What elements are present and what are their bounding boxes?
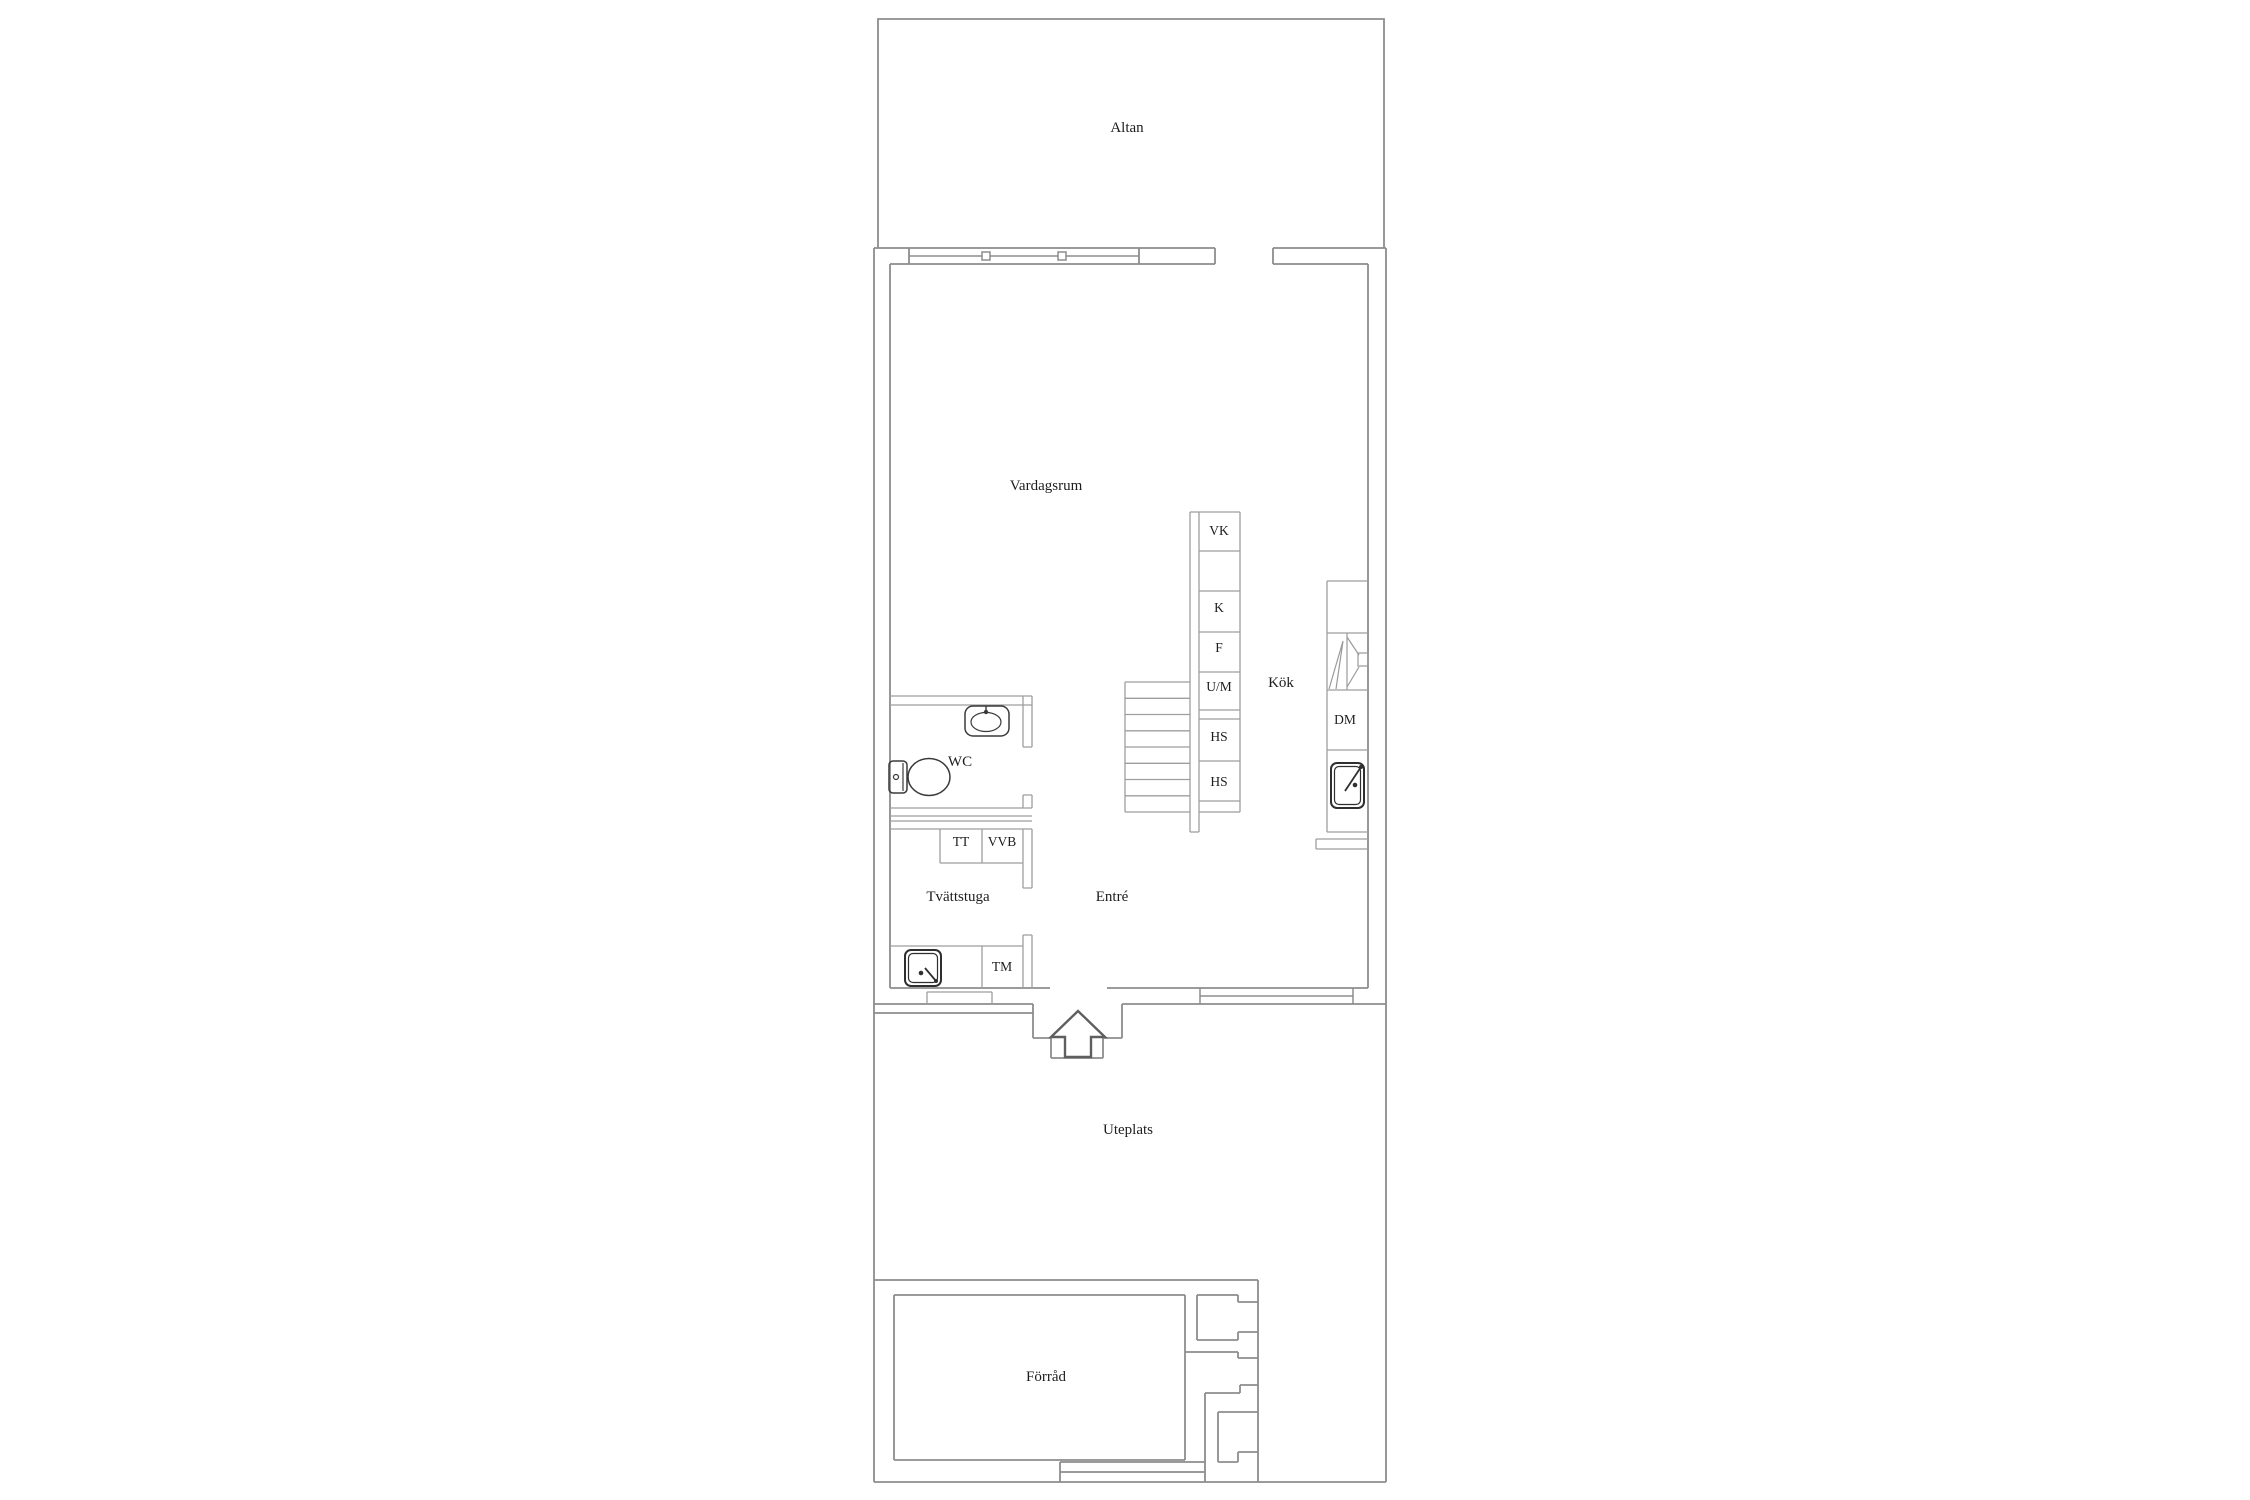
- fixture-label-dm: DM: [1334, 712, 1356, 727]
- room-label-tvattstuga: Tvättstuga: [926, 889, 990, 905]
- laundry-sink-icon: [905, 950, 941, 986]
- room-label-forrad: Förråd: [1026, 1369, 1066, 1385]
- fixture-labels: VK K F U/M HS HS DM TT VVB TM: [953, 523, 1356, 974]
- fixture-label-hs-lower: HS: [1210, 774, 1227, 789]
- room-label-kok: Kök: [1268, 675, 1294, 691]
- forrad-enclosure: [874, 1280, 1258, 1482]
- kitchen-counter: [1327, 581, 1368, 832]
- room-label-entre: Entré: [1096, 889, 1129, 905]
- fixture-label-f: F: [1215, 640, 1223, 655]
- floorplan-page: Altan Vardagsrum Kök WC Tvättstuga Entré…: [0, 0, 2250, 1500]
- room-label-wc: WC: [948, 754, 972, 770]
- stove-icon: [1329, 633, 1368, 690]
- fixture-label-tm: TM: [992, 959, 1012, 974]
- forrad-door-niche-upper: [1185, 1295, 1258, 1358]
- fixture-label-vk: VK: [1209, 523, 1229, 538]
- kitchen-sink-icon: [1331, 763, 1364, 808]
- fixture-label-hs-upper: HS: [1210, 729, 1227, 744]
- room-labels: Altan Vardagsrum Kök WC Tvättstuga Entré…: [926, 120, 1294, 1385]
- forrad-door-niche-lower: [1205, 1385, 1258, 1482]
- interior-walls: [890, 581, 1368, 1003]
- window-icon: [909, 252, 1139, 260]
- fixture-label-vvb: VVB: [988, 834, 1017, 849]
- entrance-arrow-icon: [1051, 1011, 1105, 1057]
- room-label-uteplats: Uteplats: [1103, 1122, 1153, 1138]
- washbasin-icon: [965, 706, 1009, 736]
- fixture-label-tt: TT: [953, 834, 970, 849]
- closet-column: [1199, 512, 1240, 812]
- floorplan-svg: Altan Vardagsrum Kök WC Tvättstuga Entré…: [0, 0, 2250, 1500]
- room-label-altan: Altan: [1110, 120, 1144, 136]
- window-icon-bottom: [1200, 988, 1353, 1004]
- fixture-label-um: U/M: [1206, 679, 1232, 694]
- stairs-icon: [1125, 512, 1199, 832]
- toilet-icon: [889, 759, 950, 796]
- exterior-walls: [874, 19, 1386, 1482]
- fixture-label-k: K: [1214, 600, 1224, 615]
- room-label-vardagsrum: Vardagsrum: [1010, 478, 1083, 494]
